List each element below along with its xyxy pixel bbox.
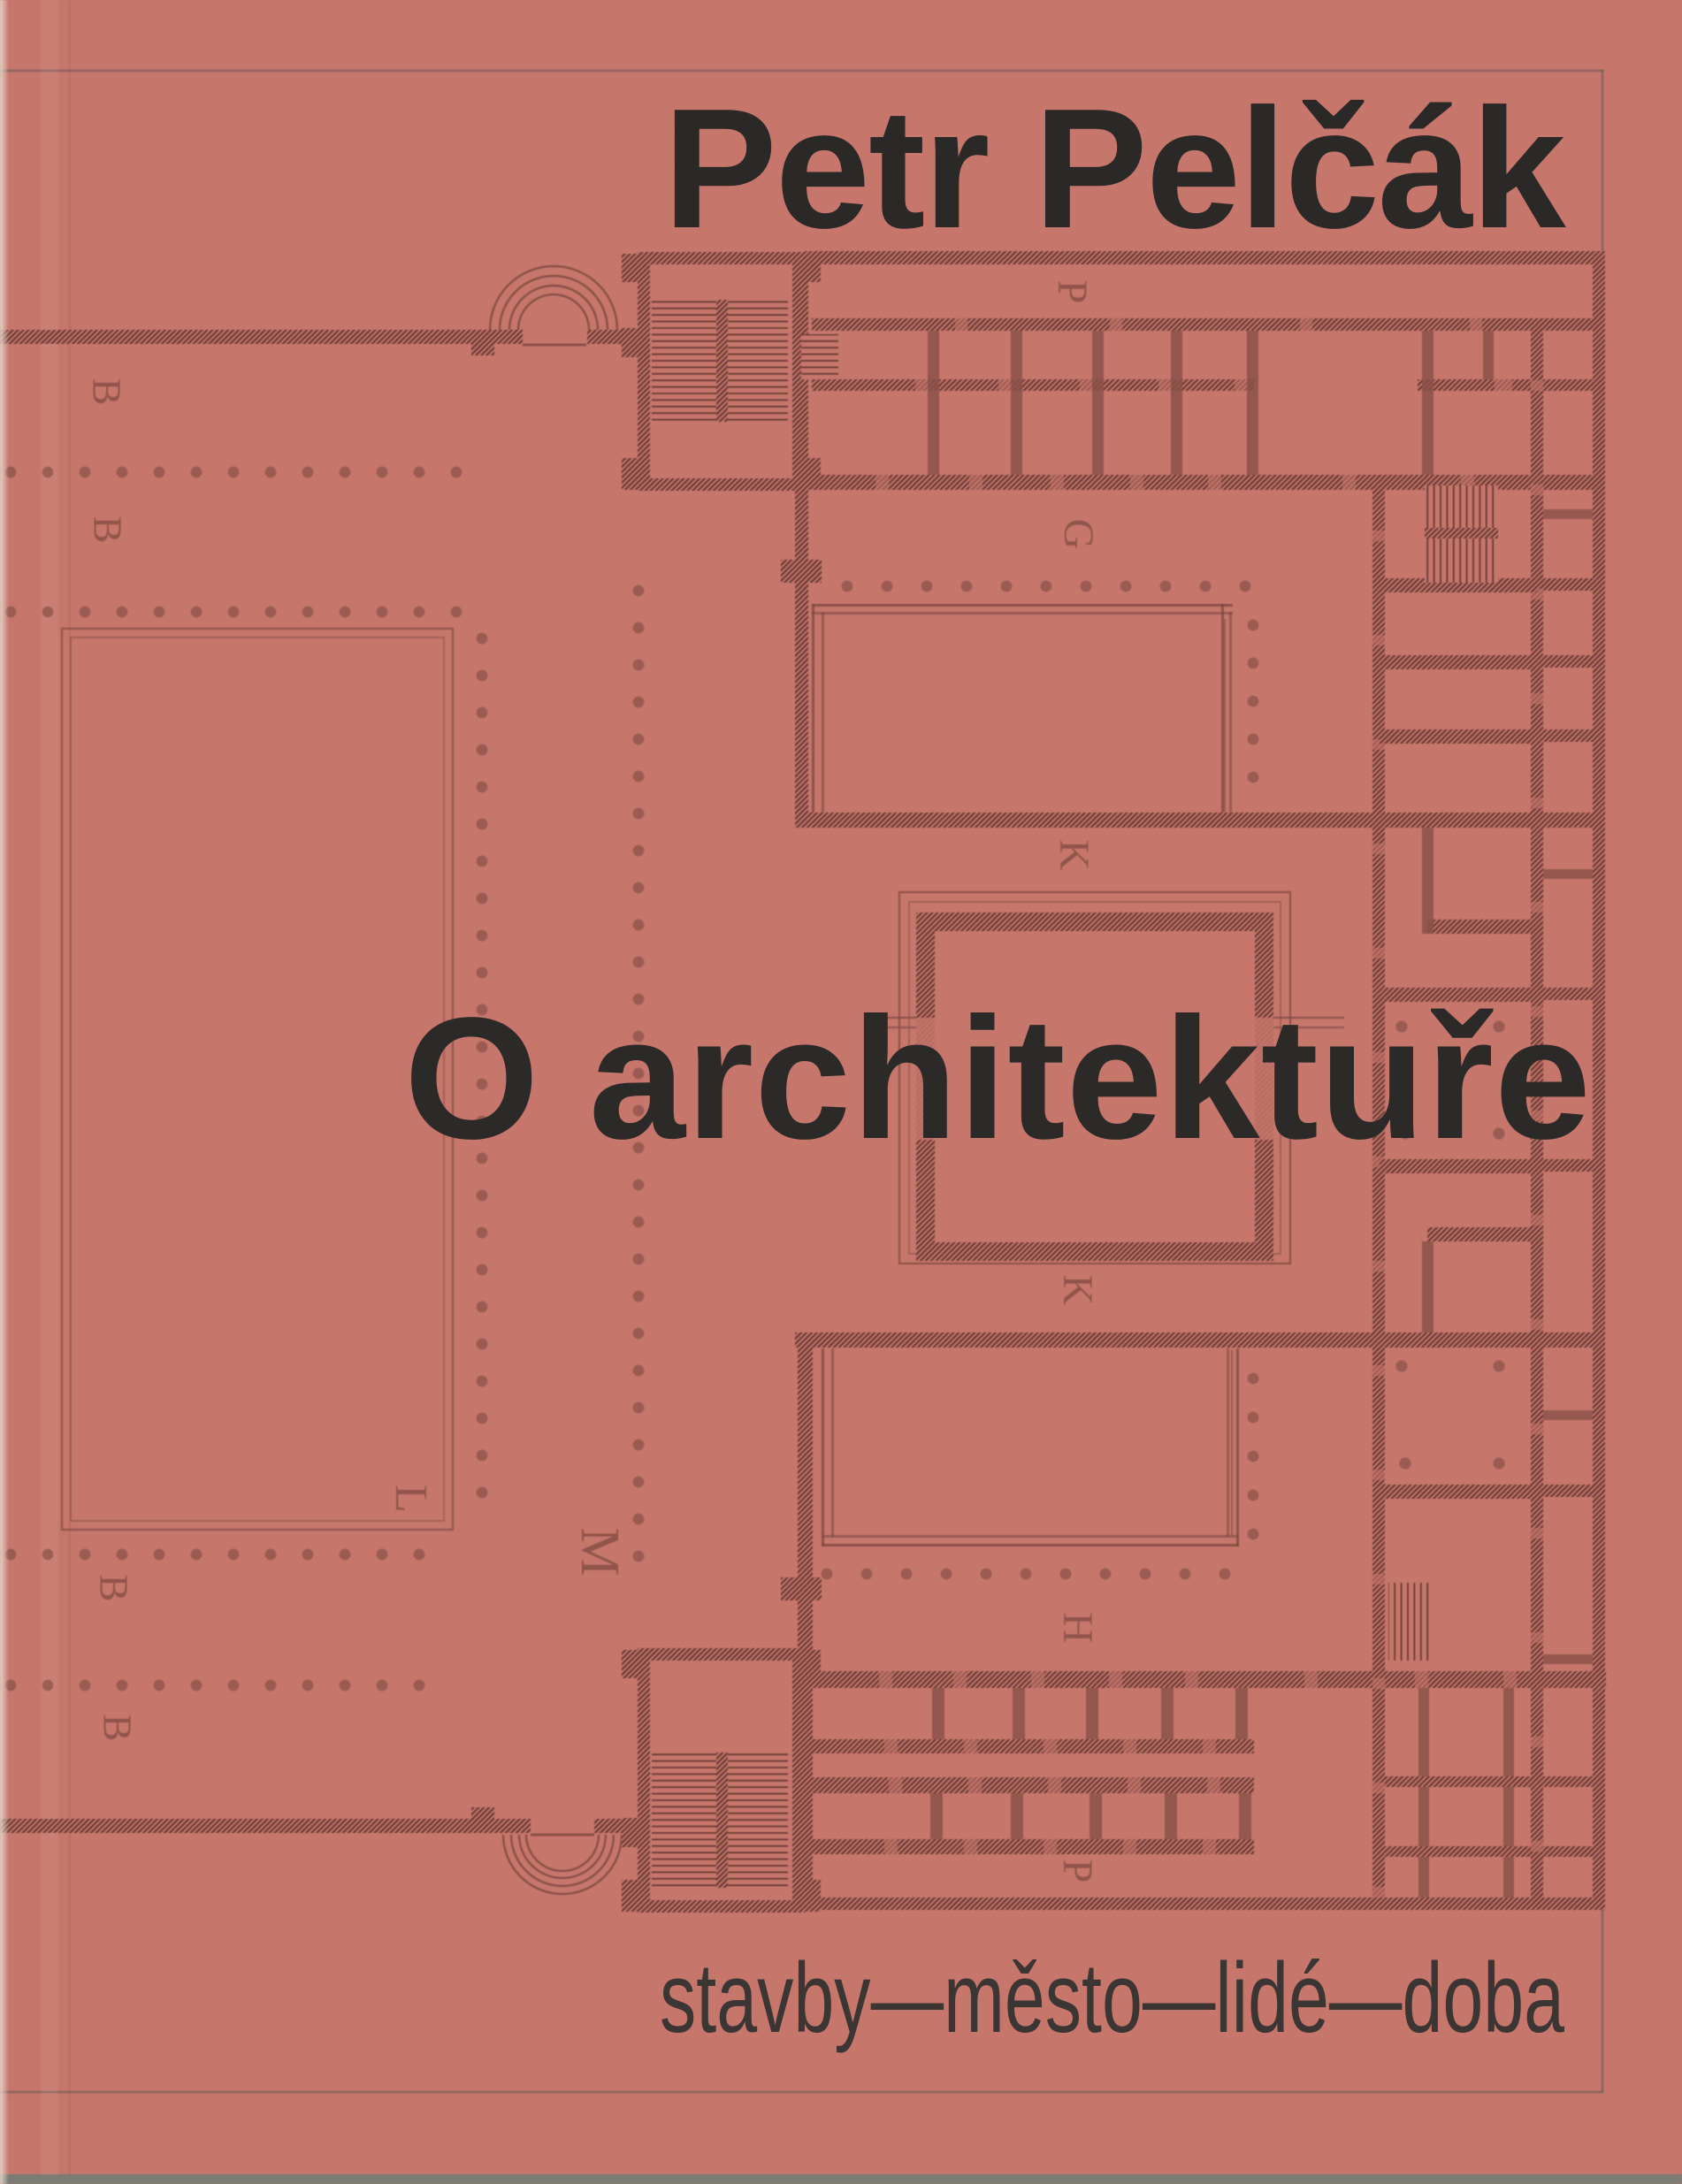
svg-text:B: B (85, 516, 130, 544)
svg-text:L: L (386, 1485, 436, 1513)
svg-text:B: B (84, 378, 129, 406)
svg-text:K: K (1054, 1275, 1101, 1306)
svg-text:M: M (570, 1527, 630, 1576)
svg-text:G: G (1055, 519, 1102, 550)
svg-text:K: K (1051, 840, 1097, 871)
svg-text:H: H (1054, 1613, 1101, 1644)
svg-text:P: P (1049, 280, 1096, 304)
svg-text:P: P (1054, 1859, 1101, 1883)
svg-text:B: B (91, 1575, 136, 1602)
svg-text:B: B (95, 1714, 140, 1742)
